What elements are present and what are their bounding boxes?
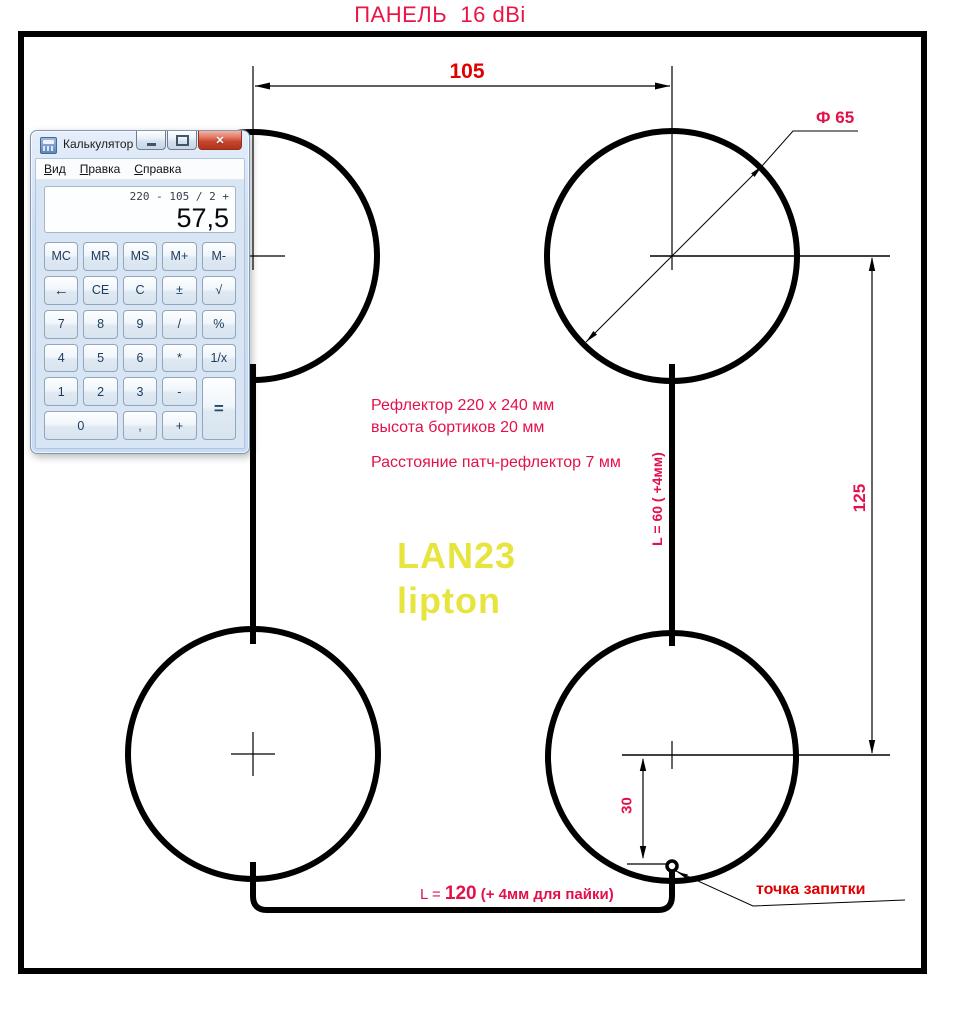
note-reflector-size: Рефлектор 220 x 240 мм — [371, 397, 554, 415]
calc-key-6[interactable]: 6 — [123, 344, 157, 373]
menu-bar: Вид Правка Справка — [36, 159, 244, 180]
calc-key-equals[interactable]: = — [202, 377, 236, 440]
calculator-app-icon — [40, 137, 57, 154]
close-button[interactable]: ✕ — [198, 131, 242, 150]
calc-key-sqrt[interactable]: √ — [202, 276, 236, 305]
calculator-icon-screen — [43, 140, 54, 144]
feed-point-marker — [667, 861, 677, 871]
note-rim-height: высота бортиков 20 мм — [371, 419, 544, 437]
calc-key-minus[interactable]: - — [162, 377, 196, 406]
calc-key-7[interactable]: 7 — [44, 310, 78, 339]
calc-key-multiply[interactable]: * — [162, 344, 196, 373]
calc-key-1[interactable]: 1 — [44, 377, 78, 406]
page-title: ПАНЕЛЬ 16 dBi — [160, 2, 720, 28]
calc-key-plusminus[interactable]: ± — [162, 276, 196, 305]
calc-key-backspace[interactable]: ← — [44, 276, 78, 305]
calculator-titlebar[interactable]: Калькулятор ✕ — [31, 131, 249, 159]
calculator-result: 57,5 — [51, 204, 229, 232]
calc-key-mc[interactable]: MC — [44, 242, 78, 271]
watermark-lan23: LAN23 — [397, 535, 516, 577]
calc-key-comma[interactable]: , — [123, 411, 157, 440]
calc-key-c[interactable]: C — [123, 276, 157, 305]
feed-point-label: точка запитки — [756, 881, 865, 899]
calculator-display: 220 - 105 / 2 + 57,5 — [44, 186, 236, 233]
calc-key-divide[interactable]: / — [162, 310, 196, 339]
dim-f65-leader — [586, 131, 858, 342]
menu-edit[interactable]: Правка — [80, 162, 121, 176]
calc-key-ms[interactable]: MS — [123, 242, 157, 271]
calc-key-mr[interactable]: MR — [83, 242, 117, 271]
calculator-keypad: MC MR MS M+ M- ← CE C ± √ 7 8 9 / % 4 5 … — [44, 242, 236, 440]
calc-key-9[interactable]: 9 — [123, 310, 157, 339]
dim-30-label: 30 — [619, 786, 636, 826]
calc-key-percent[interactable]: % — [202, 310, 236, 339]
dim-l120-value: 120 — [445, 883, 477, 905]
dim-125-label: 125 — [850, 473, 870, 523]
watermark-lipton: lipton — [397, 580, 501, 622]
calc-key-reciprocal[interactable]: 1/x — [202, 344, 236, 373]
minimize-icon — [147, 143, 156, 146]
calc-key-mminus[interactable]: M- — [202, 242, 236, 271]
dim-diameter-label: Ф 65 — [816, 108, 854, 128]
calculator-body: Вид Правка Справка 220 - 105 / 2 + 57,5 … — [35, 158, 245, 449]
dim-105-label: 105 — [430, 60, 504, 84]
calc-key-0[interactable]: 0 — [44, 411, 118, 440]
calculator-window: Калькулятор ✕ Вид Правка Справка 220 - 1… — [30, 130, 250, 454]
calc-key-mplus[interactable]: M+ — [162, 242, 196, 271]
dim-l120-label: L = 120 (+ 4мм для пайки) — [420, 883, 614, 905]
calc-key-5[interactable]: 5 — [83, 344, 117, 373]
calc-key-8[interactable]: 8 — [83, 310, 117, 339]
calc-key-2[interactable]: 2 — [83, 377, 117, 406]
minimize-button[interactable] — [136, 131, 166, 150]
close-icon: ✕ — [215, 134, 224, 147]
menu-help[interactable]: Справка — [134, 162, 181, 176]
maximize-button[interactable] — [167, 131, 197, 150]
dim-l60-label: L = 60 ( +4мм) — [649, 439, 665, 559]
calculator-history: 220 - 105 / 2 + — [51, 190, 229, 203]
calc-key-plus[interactable]: + — [162, 411, 196, 440]
calc-key-3[interactable]: 3 — [123, 377, 157, 406]
connecting-wires — [253, 364, 672, 910]
calculator-icon-keys — [43, 146, 54, 151]
window-controls: ✕ — [135, 131, 242, 150]
calc-key-4[interactable]: 4 — [44, 344, 78, 373]
maximize-icon — [176, 135, 189, 146]
note-patch-distance: Расстояние патч-рефлектор 7 мм — [371, 454, 621, 472]
calc-key-ce[interactable]: CE — [83, 276, 117, 305]
dim-l120-suffix: (+ 4мм для пайки) — [477, 886, 614, 903]
dim-l120-prefix: L = — [420, 886, 445, 903]
window-title: Калькулятор — [63, 137, 133, 151]
menu-view[interactable]: Вид — [44, 162, 66, 176]
